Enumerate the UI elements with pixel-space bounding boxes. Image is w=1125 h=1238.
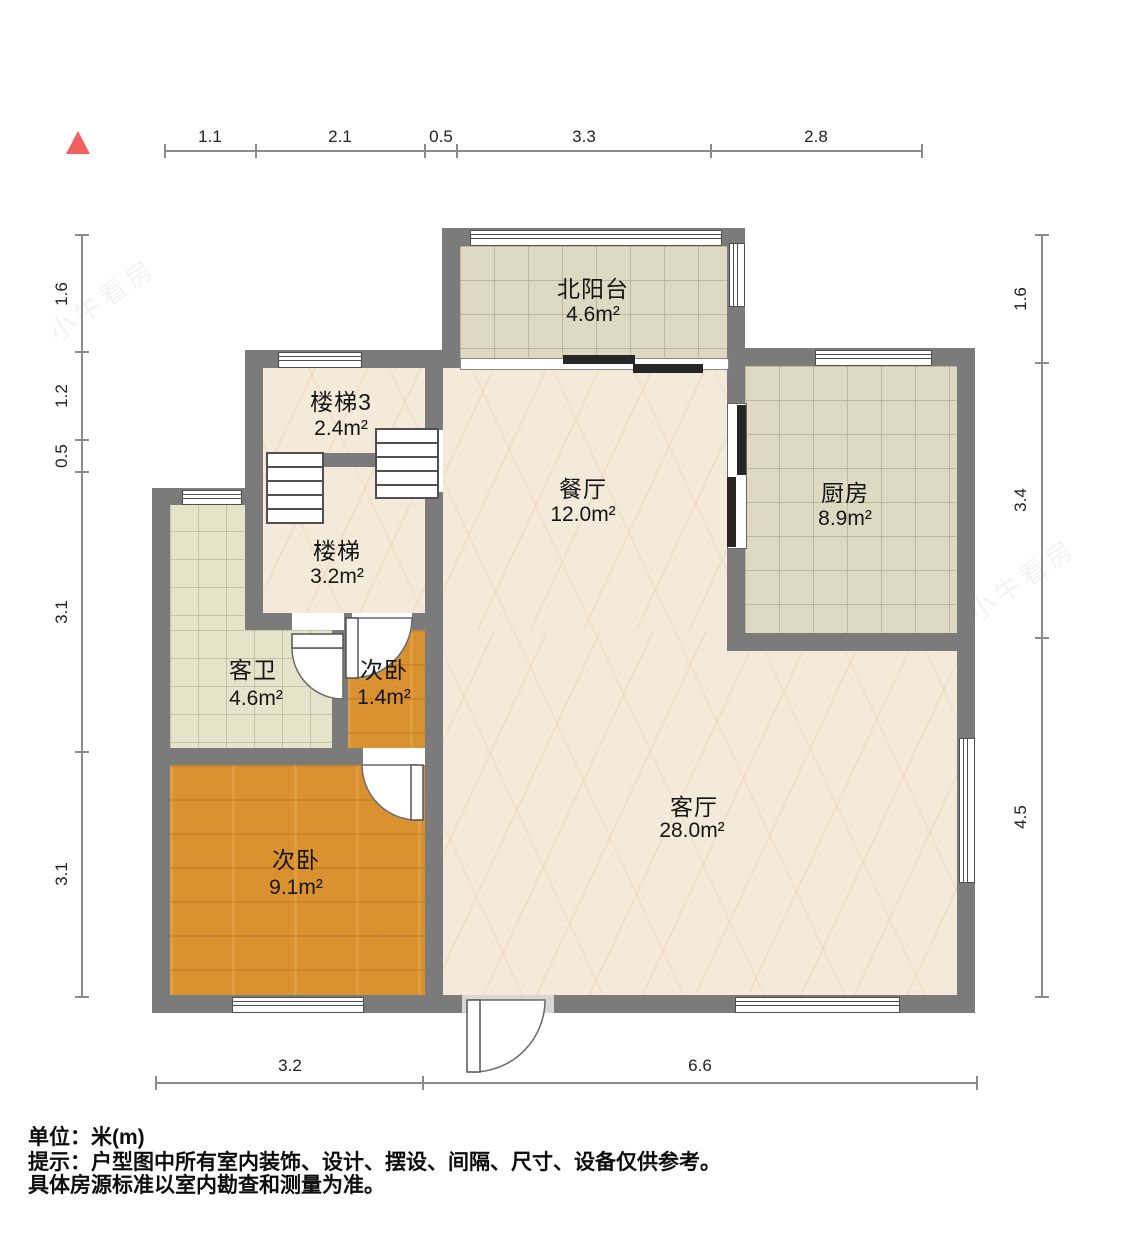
footer-unit: 单位：米(m) xyxy=(28,1126,145,1149)
window xyxy=(815,350,932,366)
dim-line-top xyxy=(165,150,922,152)
room-area-bath: 4.6m² xyxy=(229,687,283,711)
room-label-balcony: 北阳台 xyxy=(557,270,629,304)
window xyxy=(278,352,362,368)
dim-tick xyxy=(75,439,89,441)
dim-tick xyxy=(75,234,89,236)
dim-tick xyxy=(155,1076,157,1090)
stair-flight xyxy=(375,428,439,499)
room-label-bath: 客卫 xyxy=(229,651,277,685)
dim-label: 3.1 xyxy=(52,862,72,886)
dim-line-bottom xyxy=(156,1082,977,1084)
wall xyxy=(318,453,377,467)
room-label-stairs: 楼梯 xyxy=(313,532,361,566)
room-area-bedroom-small: 1.4m² xyxy=(357,686,411,710)
dim-tick xyxy=(921,144,923,158)
sliding-door-panel xyxy=(633,364,703,373)
floor-plan: 小牛看房 小牛看房 小牛看房 小牛看房 xyxy=(0,0,1125,1238)
entrance-threshold xyxy=(462,995,554,1013)
north-arrow-icon xyxy=(66,131,90,154)
dim-label: 1.1 xyxy=(198,127,222,147)
room-label-bedroom-small: 次卧 xyxy=(360,651,408,685)
dim-label: 2.1 xyxy=(328,127,352,147)
room-label-living: 客厅 xyxy=(670,788,718,822)
wall xyxy=(957,348,975,1013)
dim-tick xyxy=(1035,637,1049,639)
dim-tick xyxy=(1035,362,1049,364)
window xyxy=(232,997,364,1013)
wall xyxy=(332,630,348,748)
watermark-text: 小牛看房 xyxy=(961,528,1084,629)
wall xyxy=(442,228,460,368)
dim-tick xyxy=(75,471,89,473)
wall xyxy=(425,612,443,995)
room-area-stairs: 3.2m² xyxy=(310,565,364,589)
dim-tick xyxy=(1035,996,1049,998)
room-label-stairs3: 楼梯3 xyxy=(310,383,372,417)
dim-tick xyxy=(976,1076,978,1090)
window xyxy=(470,230,722,246)
wall xyxy=(152,748,363,765)
dim-tick xyxy=(75,996,89,998)
dim-label: 1.6 xyxy=(1011,287,1031,311)
dim-tick xyxy=(164,144,166,158)
dim-label: 3.1 xyxy=(52,600,72,624)
dim-label: 0.5 xyxy=(52,444,72,468)
sliding-door-panel xyxy=(737,405,746,475)
dim-tick xyxy=(424,144,426,158)
window xyxy=(959,738,975,883)
dim-label: 3.4 xyxy=(1011,488,1031,512)
wall xyxy=(245,613,292,630)
dim-line-left xyxy=(81,235,83,998)
room-label-bedroom: 次卧 xyxy=(272,841,320,875)
wall xyxy=(425,366,443,430)
room-area-balcony: 4.6m² xyxy=(566,303,620,327)
wall xyxy=(245,350,263,615)
dim-tick xyxy=(1035,234,1049,236)
dim-label: 1.6 xyxy=(52,282,72,306)
dim-tick xyxy=(75,751,89,753)
dim-label: 6.6 xyxy=(688,1056,712,1076)
stair-flight xyxy=(266,452,324,524)
footer-note-1: 提示：户型图中所有室内装饰、设计、摆设、间隔、尺寸、设备仅供参考。 xyxy=(28,1151,721,1174)
window xyxy=(182,490,242,505)
room-label-kitchen: 厨房 xyxy=(821,474,869,508)
dim-tick xyxy=(710,144,712,158)
dim-label: 3.2 xyxy=(278,1056,302,1076)
wall xyxy=(344,613,352,630)
wall xyxy=(425,492,443,632)
room-area-stairs3: 2.4m² xyxy=(314,417,368,441)
dim-line-right xyxy=(1041,235,1043,998)
sliding-door-panel xyxy=(563,355,635,364)
wall xyxy=(727,633,975,651)
window xyxy=(729,243,745,307)
sliding-door-panel xyxy=(727,477,736,547)
room-floor-bath xyxy=(170,503,245,630)
dim-label: 4.5 xyxy=(1011,805,1031,829)
dim-label: 3.3 xyxy=(572,127,596,147)
dim-tick xyxy=(456,144,458,158)
room-area-kitchen: 8.9m² xyxy=(818,507,872,531)
dim-tick xyxy=(422,1076,424,1090)
dim-label: 0.5 xyxy=(429,127,453,147)
room-area-bedroom: 9.1m² xyxy=(269,876,323,900)
window xyxy=(735,997,900,1013)
room-area-dining: 12.0m² xyxy=(550,503,615,527)
room-label-dining: 餐厅 xyxy=(559,470,607,504)
dim-tick xyxy=(255,144,257,158)
dim-tick xyxy=(75,351,89,353)
dim-label: 2.8 xyxy=(804,127,828,147)
room-area-living: 28.0m² xyxy=(659,819,724,843)
dim-label: 1.2 xyxy=(52,384,72,408)
footer-note-2: 具体房源标准以室内勘查和测量为准。 xyxy=(28,1174,385,1197)
